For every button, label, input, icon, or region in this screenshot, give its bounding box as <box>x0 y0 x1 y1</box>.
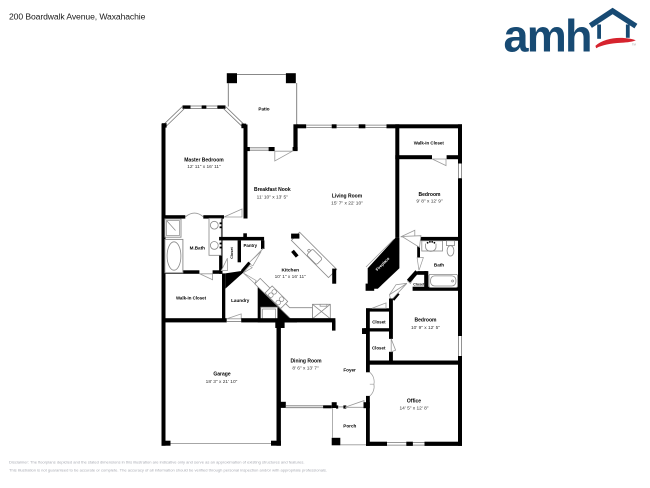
svg-text:amh: amh <box>504 11 591 62</box>
svg-text:TM: TM <box>632 43 636 47</box>
svg-text:8' 6" x 13' 7": 8' 6" x 13' 7" <box>292 365 319 371</box>
svg-text:Pantry: Pantry <box>243 243 257 248</box>
svg-text:This illustration is not guara: This illustration is not guaranteed to b… <box>9 467 327 472</box>
svg-text:Living Room: Living Room <box>332 193 363 199</box>
svg-text:Bedroom: Bedroom <box>419 192 442 198</box>
svg-text:14' 5" x 12' 8": 14' 5" x 12' 8" <box>400 405 429 411</box>
svg-text:Closet: Closet <box>413 282 425 286</box>
svg-text:Walk-In Closet: Walk-In Closet <box>414 140 445 145</box>
svg-text:M.Bath: M.Bath <box>190 246 206 251</box>
svg-text:11' 10" x 13' 5": 11' 10" x 13' 5" <box>257 194 289 200</box>
svg-text:10' 1" x 16' 11": 10' 1" x 16' 11" <box>275 274 307 280</box>
svg-text:Walk-In Closet: Walk-In Closet <box>176 296 207 301</box>
svg-text:18' 3" x 21' 10": 18' 3" x 21' 10" <box>206 379 238 385</box>
svg-text:15' 7" x 22' 10": 15' 7" x 22' 10" <box>331 200 363 206</box>
svg-text:Bedroom: Bedroom <box>415 317 438 323</box>
svg-text:Breakfast Nook: Breakfast Nook <box>254 187 291 193</box>
svg-text:Foyer: Foyer <box>343 367 356 372</box>
svg-text:Office: Office <box>407 399 421 405</box>
svg-text:Closet: Closet <box>230 246 234 258</box>
svg-text:Disclaimer: The floorplans dep: Disclaimer: The floorplans depicted and … <box>9 459 305 464</box>
svg-text:Closet: Closet <box>372 346 386 351</box>
svg-text:200 Boardwalk Avenue, Waxahach: 200 Boardwalk Avenue, Waxahachie <box>9 12 146 22</box>
svg-text:12' 11" x 16' 11": 12' 11" x 16' 11" <box>187 164 221 170</box>
svg-text:Closet: Closet <box>372 319 386 324</box>
svg-text:Kitchen: Kitchen <box>282 268 300 274</box>
svg-text:10' 9" x 12' 5": 10' 9" x 12' 5" <box>411 325 440 331</box>
svg-text:Bath: Bath <box>434 263 444 268</box>
svg-text:Master Bedroom: Master Bedroom <box>184 157 224 163</box>
svg-text:9' 8" x 12' 9": 9' 8" x 12' 9" <box>416 198 443 204</box>
svg-text:Patio: Patio <box>258 107 269 112</box>
svg-text:Porch: Porch <box>343 423 356 428</box>
svg-text:Garage: Garage <box>213 372 230 378</box>
svg-text:Laundry: Laundry <box>231 298 250 303</box>
svg-text:Dining Room: Dining Room <box>290 359 322 365</box>
